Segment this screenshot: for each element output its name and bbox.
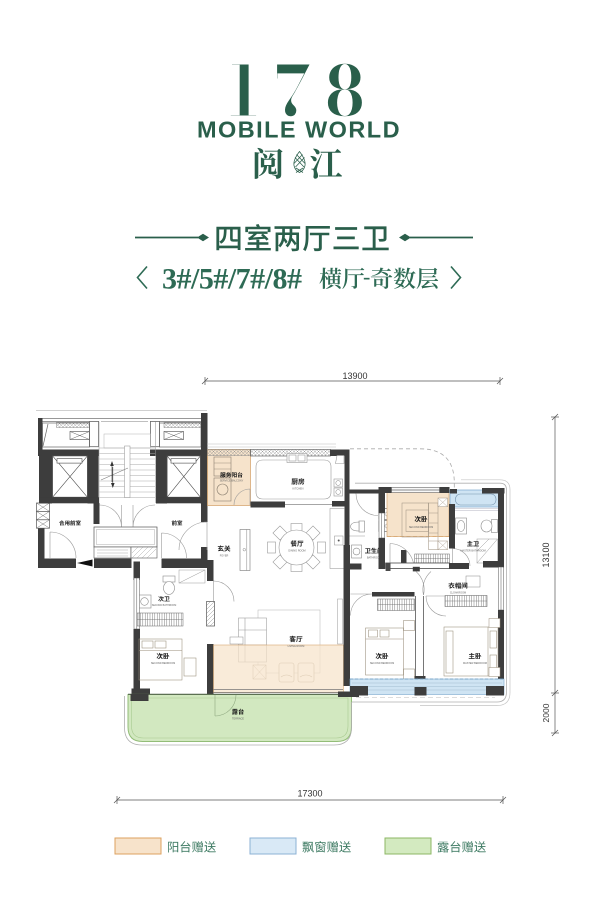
svg-text:SECOND BATHROOM: SECOND BATHROOM: [152, 604, 177, 607]
svg-text:SECOND BEDROOM: SECOND BEDROOM: [151, 662, 175, 665]
svg-text:MASTER BATHROOM: MASTER BATHROOM: [460, 550, 485, 553]
svg-text:LIVING ROOM: LIVING ROOM: [288, 645, 305, 648]
svg-text:SECOND BEDROOM: SECOND BEDROOM: [370, 662, 394, 665]
svg-text:SECOND BEDROOM: SECOND BEDROOM: [409, 526, 433, 529]
svg-text:DINING ROOM: DINING ROOM: [288, 550, 305, 553]
svg-text:TERRACE: TERRACE: [232, 718, 244, 721]
svg-text:FOYER: FOYER: [220, 555, 229, 558]
svg-text:3#/5#/7#/8#: 3#/5#/7#/8#: [162, 263, 302, 296]
svg-text:MASTER BEDROOM: MASTER BEDROOM: [463, 662, 487, 665]
svg-text:2000: 2000: [541, 703, 551, 722]
svg-text:13900: 13900: [342, 371, 367, 381]
svg-text:13100: 13100: [541, 542, 551, 567]
svg-text:CLOAKROOM: CLOAKROOM: [450, 592, 466, 595]
svg-text:MOBILE WORLD: MOBILE WORLD: [197, 117, 401, 143]
svg-text:SERVICE BALCONY: SERVICE BALCONY: [220, 480, 244, 483]
svg-text:-: -: [363, 264, 370, 289]
svg-text:17300: 17300: [297, 789, 322, 799]
svg-text:KITCHEN: KITCHEN: [293, 488, 304, 491]
